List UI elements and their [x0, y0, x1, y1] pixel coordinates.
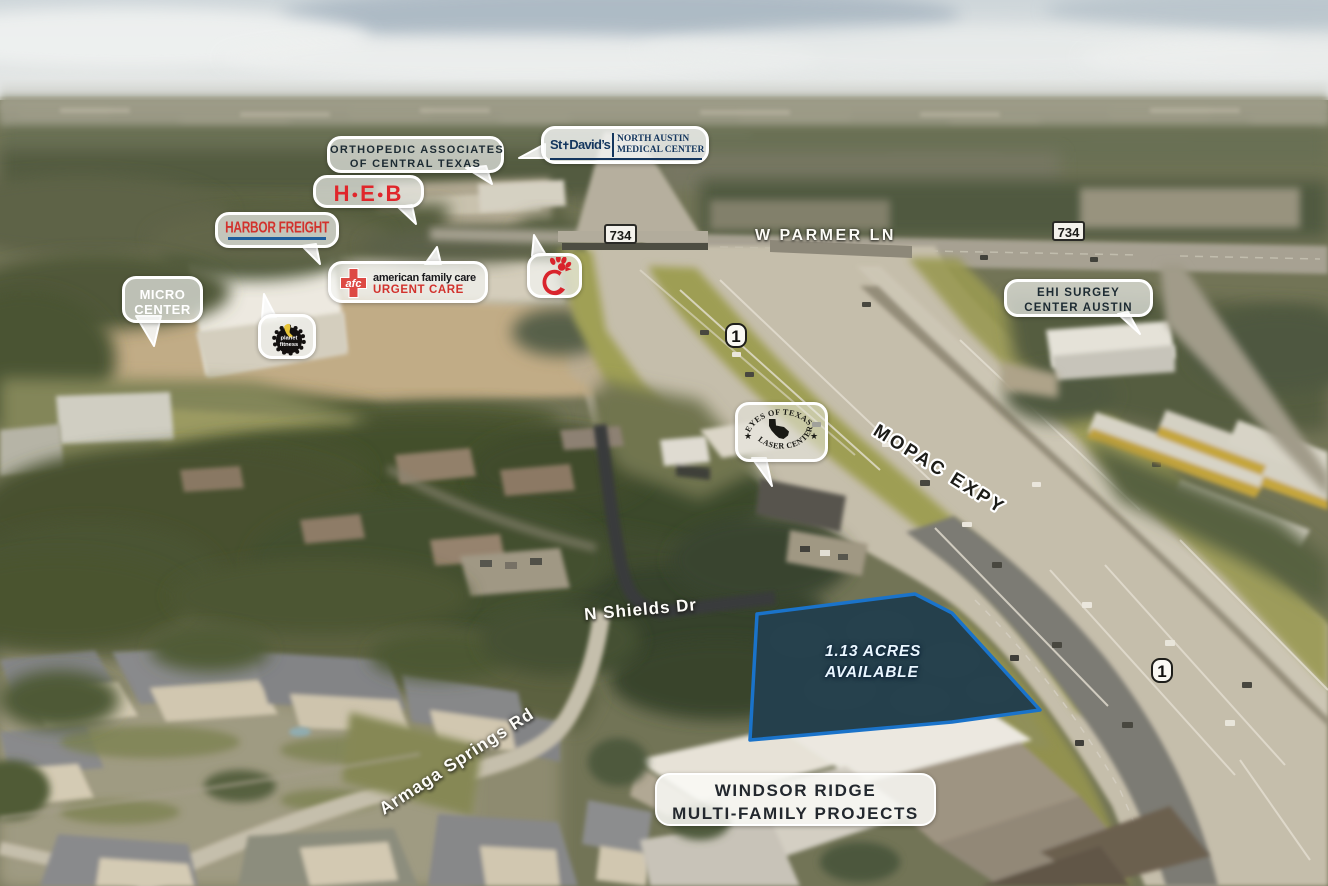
svg-text:★: ★ — [744, 431, 752, 441]
svg-text:fitness: fitness — [280, 342, 298, 348]
svg-text:planet: planet — [281, 336, 298, 342]
svg-text:afc: afc — [346, 278, 362, 290]
svg-text:★: ★ — [810, 431, 818, 441]
svg-text:MOPAC EXPY: MOPAC EXPY — [870, 420, 1010, 518]
